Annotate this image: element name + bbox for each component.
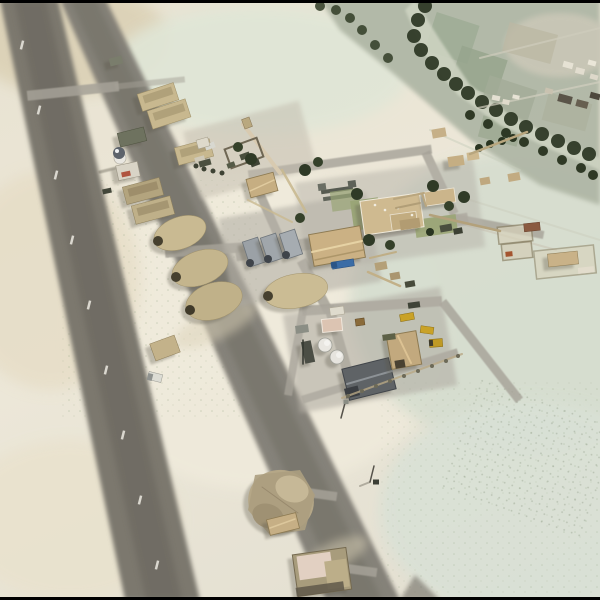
white-fuel-tank-1-highlight: [324, 340, 330, 346]
light-pole-1-head: [344, 400, 349, 404]
earth-bunker-4-entrance: [263, 291, 273, 301]
white-shed-south: [330, 306, 345, 316]
earth-bunker-1-entrance: [153, 236, 163, 246]
yellow-dump-truck-cab: [429, 340, 433, 346]
scene-svg: [0, 0, 600, 600]
supply-crate: [355, 318, 365, 326]
yard-red-item: [505, 251, 512, 257]
earth-bunker-3-entrance: [185, 305, 195, 315]
control-tower-cab: [113, 147, 125, 159]
blue-truck-cab: [331, 262, 338, 269]
walled-yard-south: [501, 241, 533, 260]
white-fuel-tank-2-highlight: [336, 352, 342, 358]
power-box-east: [348, 180, 357, 188]
control-tower-cab-light: [115, 149, 119, 153]
light-pole-2-box: [373, 480, 379, 485]
east-compound-building: [547, 251, 578, 267]
yellow-vehicle-2: [420, 326, 434, 335]
light-pole-2-shadow: [360, 482, 370, 486]
red-roof-building: [524, 222, 541, 232]
tan-barn-door: [394, 359, 405, 369]
earth-bunker-2-entrance: [171, 272, 181, 282]
quonset-hut-3-arch: [282, 251, 290, 259]
quonset-hut-2-arch: [264, 255, 272, 263]
quonset-hut-1-arch: [246, 259, 254, 267]
letterbox-top: [0, 0, 600, 3]
airbase-aerial-render: [0, 0, 600, 600]
power-box-west: [318, 183, 327, 191]
pink-building: [321, 317, 342, 332]
